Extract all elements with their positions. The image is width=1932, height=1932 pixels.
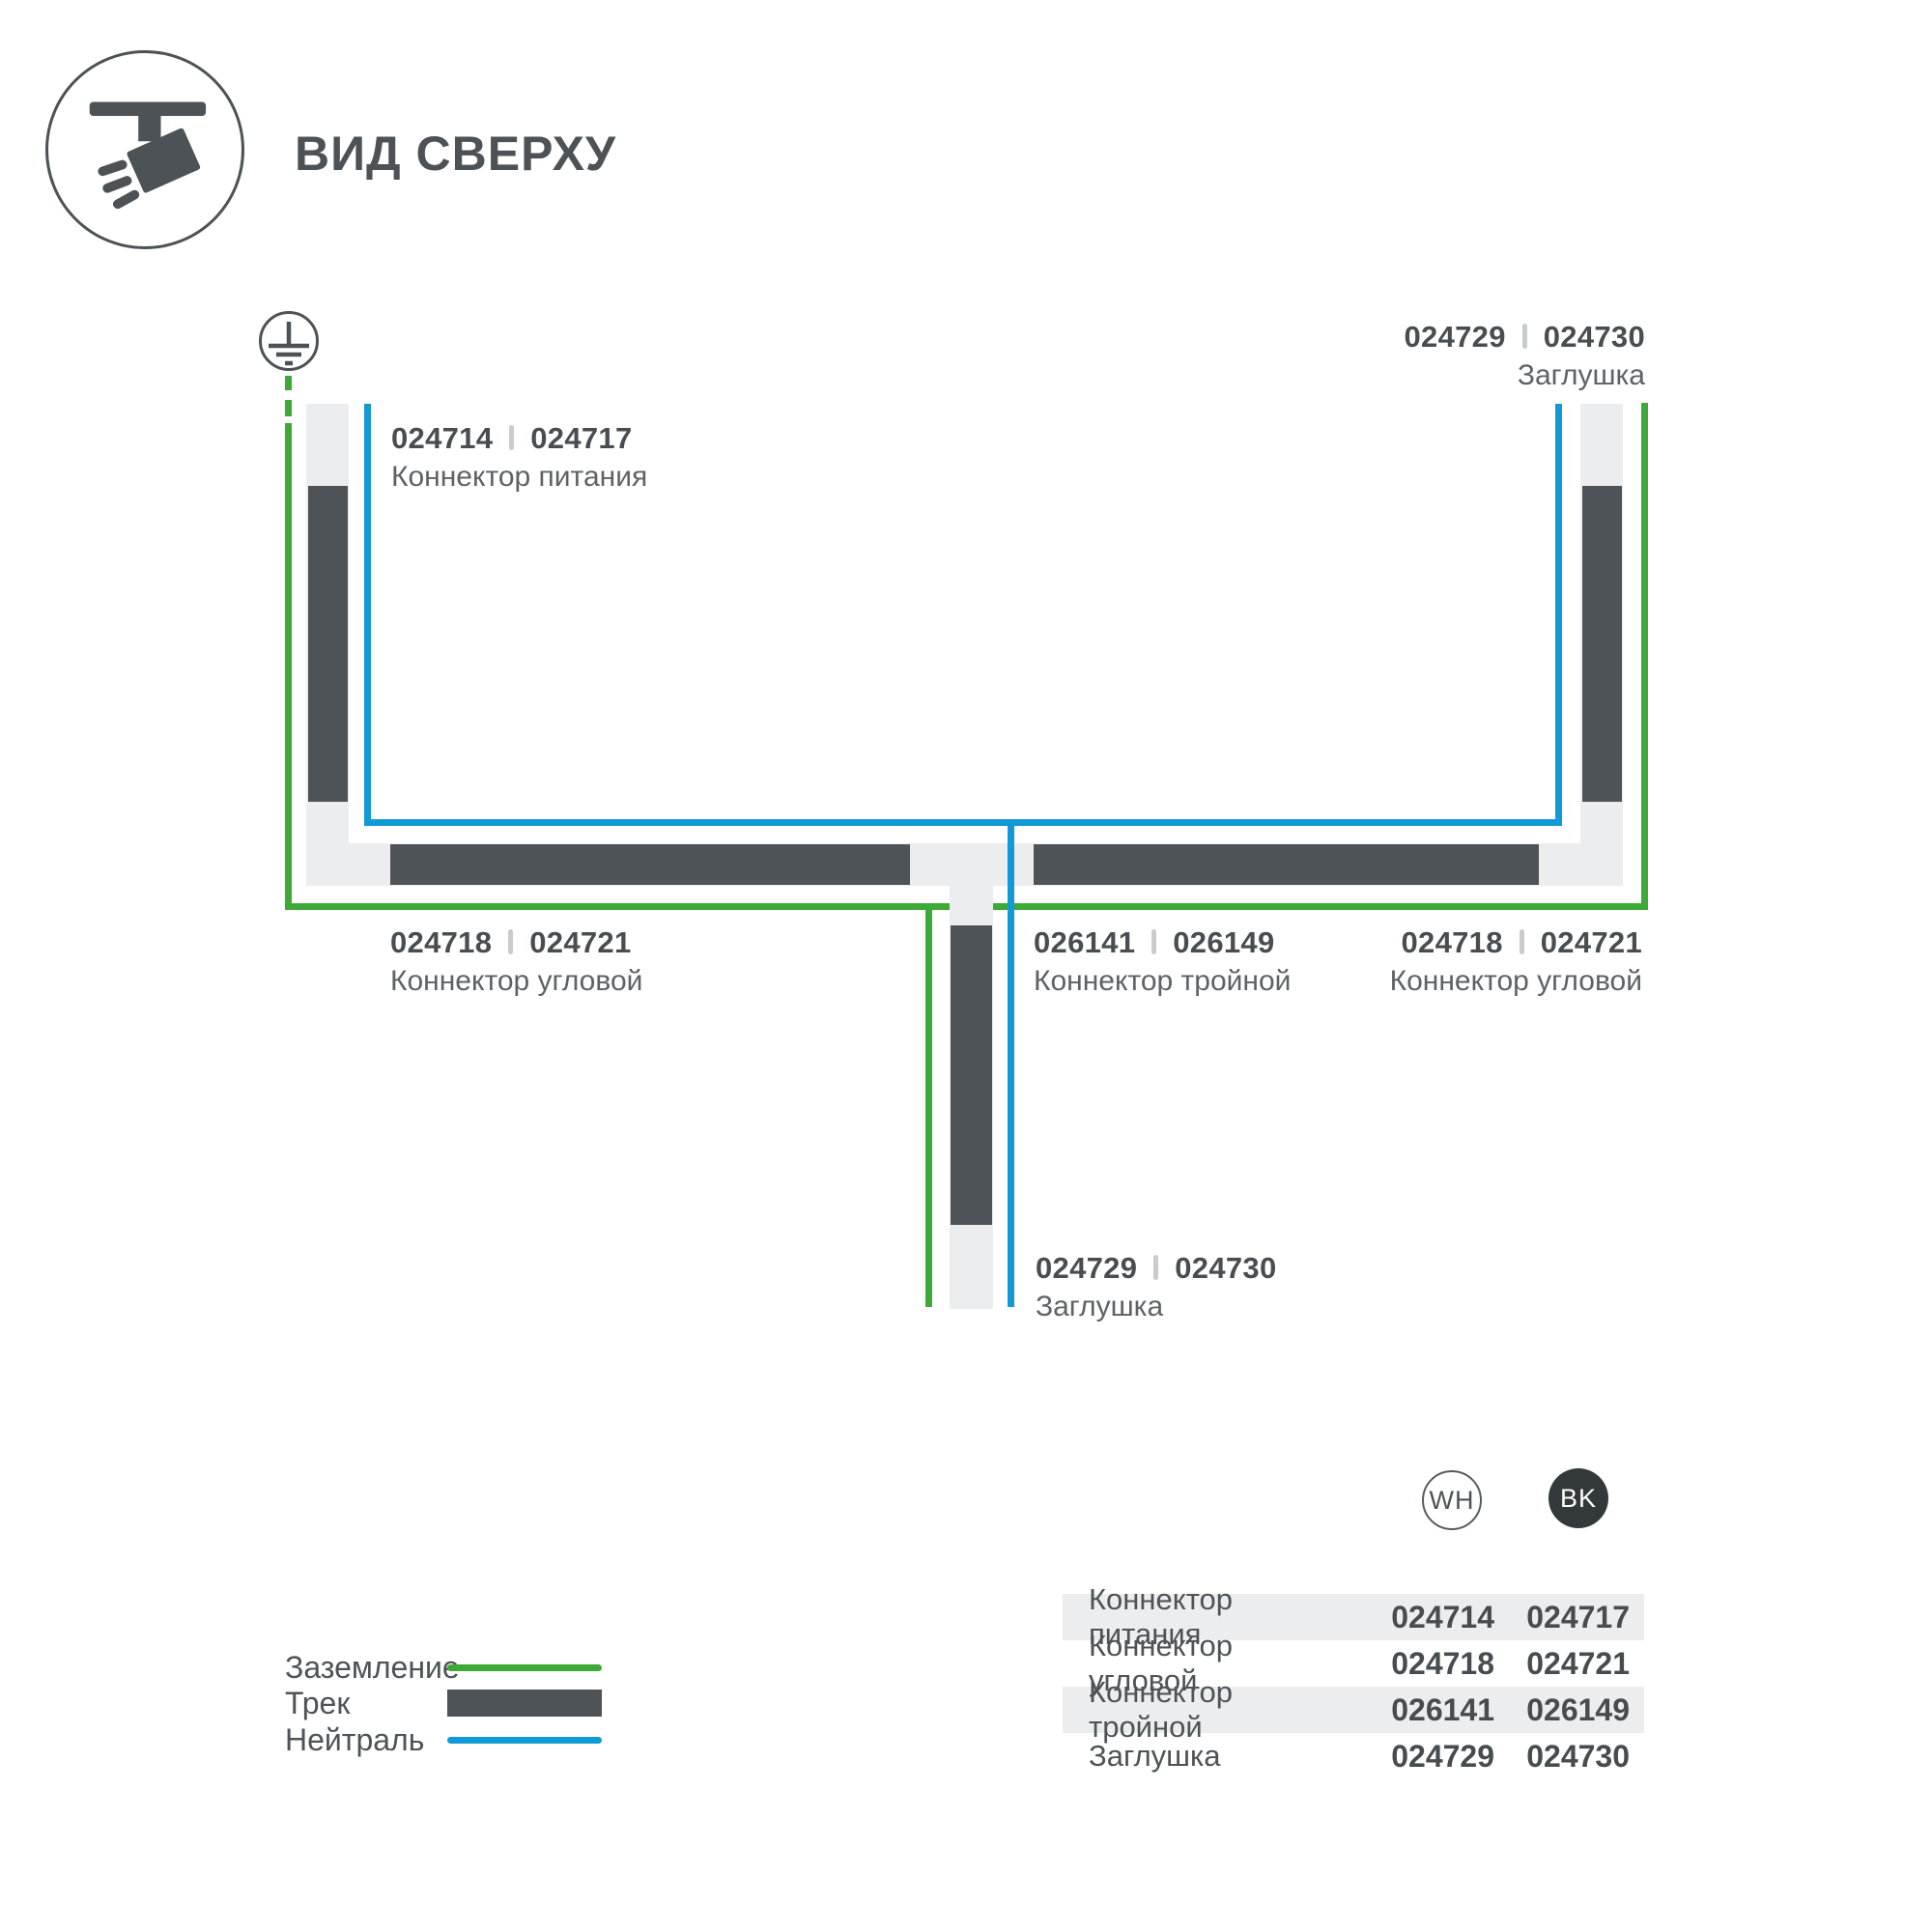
black-color-badge: BK [1548,1468,1608,1528]
track-segment-right [1582,486,1622,802]
code-wh: 024729 [1405,320,1506,354]
code-wh: 024718 [1402,925,1503,959]
table-row: Коннектор тройной 026141 026149 [1063,1687,1644,1733]
part-code-wh: 026141 [1350,1692,1494,1728]
ground-wire-right [1641,403,1648,910]
legend-item-track: Трек [285,1685,602,1721]
part-code-bk: 024730 [1494,1739,1644,1775]
label-name: Заглушка [1405,361,1646,390]
part-code-wh: 024729 [1350,1739,1494,1775]
neutral-wire-stem [1008,819,1014,1307]
label-name: Коннектор питания [391,463,647,492]
ground-wire-stem [925,903,932,1307]
code-wh: 024714 [391,421,493,455]
code-separator [508,929,513,954]
track-segment-bottom-right [1034,844,1539,885]
code-wh: 024718 [390,925,492,959]
legend-label: Трек [285,1686,447,1721]
legend-label: Заземление [285,1650,447,1686]
label-name: Заглушка [1036,1293,1277,1321]
track-segment-left [308,486,348,802]
blue-line-swatch [447,1737,602,1744]
code-wh: 024729 [1036,1251,1137,1285]
legend-item-ground: Заземление [285,1649,602,1686]
code-separator [1522,324,1527,349]
legend-item-neutral: Нейтраль [285,1721,602,1758]
part-code-wh: 024718 [1350,1646,1494,1682]
code-separator [509,425,514,450]
code-bk: 024730 [1544,320,1645,354]
white-color-badge: WH [1422,1470,1482,1530]
label-endcap-top: 024729024730 Заглушка [1405,322,1646,390]
label-name: Коннектор тройной [1034,967,1291,996]
part-name: Заглушка [1063,1739,1350,1774]
neutral-wire-right [1555,404,1562,826]
page-title: ВИД СВЕРХУ [295,126,616,182]
code-bk: 024721 [1541,925,1642,959]
ground-wire-left [285,423,292,910]
part-code-wh: 024714 [1350,1600,1494,1635]
label-tee-connector: 026141026149 Коннектор тройной [1034,927,1291,996]
track-segment-stem [951,925,992,1225]
ground-wire-dash [285,376,292,390]
table-row: Заглушка 024729 024730 [1063,1733,1644,1779]
neutral-wire-horizontal [364,819,1562,826]
neutral-wire-left [364,404,371,826]
legend-label: Нейтраль [285,1722,447,1758]
part-code-bk: 024717 [1494,1600,1644,1635]
parts-table: Коннектор питания 024714 024717 Коннекто… [1063,1594,1644,1779]
page: ВИД СВЕРХУ 024714024717 Коннектор питани… [0,0,1932,1932]
label-name: Коннектор угловой [1390,967,1642,996]
code-bk: 024730 [1175,1251,1276,1285]
earth-icon [262,314,316,368]
part-name: Коннектор тройной [1063,1675,1350,1745]
code-bk: 024717 [530,421,632,455]
label-name: Коннектор угловой [390,967,642,996]
green-line-swatch [447,1664,602,1671]
part-code-bk: 026149 [1494,1692,1644,1728]
label-corner-connector-left: 024718024721 Коннектор угловой [390,927,642,996]
code-separator [1520,929,1524,954]
code-wh: 026141 [1034,925,1135,959]
code-bk: 026149 [1173,925,1274,959]
track-bar-swatch [447,1690,602,1717]
label-power-connector: 024714024717 Коннектор питания [391,423,647,492]
label-endcap-bottom: 024729024730 Заглушка [1036,1253,1277,1321]
code-separator [1153,1255,1158,1280]
ground-symbol [259,311,319,371]
spotlight-icon [48,53,241,246]
ground-wire-dash [285,400,292,416]
code-bk: 024721 [529,925,631,959]
track-light-icon [45,50,244,249]
label-corner-connector-right: 024718024721 Коннектор угловой [1390,927,1642,996]
track-segment-bottom-left [390,844,910,885]
code-separator [1151,929,1156,954]
part-code-bk: 024721 [1494,1646,1644,1682]
